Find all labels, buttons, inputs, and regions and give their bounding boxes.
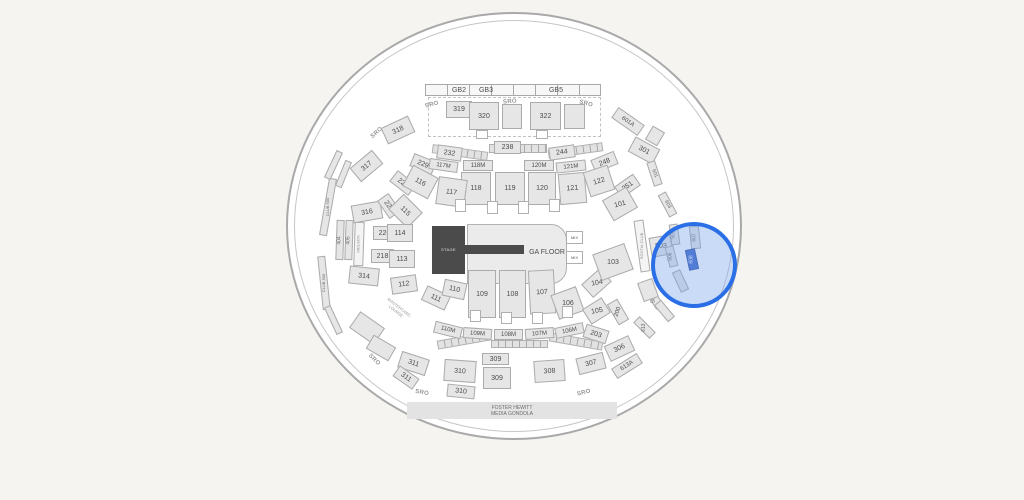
section-107m[interactable]: 107M bbox=[525, 327, 555, 340]
section-gb2: GB2 bbox=[447, 85, 471, 95]
arena-shape-portal bbox=[487, 201, 498, 214]
section-mix: MIX bbox=[566, 251, 583, 264]
section-113[interactable]: 113 bbox=[389, 250, 415, 268]
section-108[interactable]: 108 bbox=[499, 270, 526, 318]
seat-map[interactable]: GB2GB3GB5319320322SROSROSROSRO3183173163… bbox=[0, 0, 1024, 500]
section-molson[interactable]: MOLSON bbox=[353, 222, 365, 266]
section-322[interactable]: 322 bbox=[530, 102, 561, 130]
section-404[interactable]: 404 bbox=[335, 220, 344, 260]
section-120m[interactable]: 120M bbox=[524, 160, 554, 171]
section-108m[interactable]: 108M bbox=[494, 329, 523, 340]
section-320[interactable]: 320 bbox=[469, 102, 499, 130]
section-405[interactable]: 405 bbox=[344, 220, 353, 260]
arena-shape-portal bbox=[470, 310, 481, 322]
section-308[interactable]: 308 bbox=[533, 359, 565, 383]
section-310[interactable]: 310 bbox=[443, 359, 476, 383]
selected-section-highlight bbox=[651, 222, 737, 308]
section-314[interactable]: 314 bbox=[348, 265, 380, 286]
section-309[interactable]: 309 bbox=[482, 353, 509, 365]
arena-shape-portal bbox=[501, 312, 512, 324]
arena-shape-tick bbox=[491, 340, 548, 348]
section-114[interactable]: 114 bbox=[387, 224, 413, 242]
section-309[interactable]: 309 bbox=[483, 367, 511, 389]
section-gb3: GB3 bbox=[474, 85, 498, 95]
section-mix: MIX bbox=[566, 231, 583, 244]
section-118m[interactable]: 118M bbox=[463, 160, 493, 171]
section-107[interactable]: 107 bbox=[528, 269, 556, 314]
section-foster-hewitt-media-gondola: FOSTER HEWITTMEDIA GONDOLA bbox=[407, 402, 617, 419]
section-238[interactable]: 238 bbox=[494, 141, 521, 154]
arena-shape-portal bbox=[518, 201, 529, 214]
arena-shape-runway bbox=[464, 245, 524, 254]
arena-shape-portal bbox=[549, 199, 560, 212]
section-stage: STAGE bbox=[432, 226, 465, 274]
arena-shape-portal bbox=[536, 130, 548, 139]
sro-section[interactable]: SRO bbox=[498, 96, 523, 108]
arena-shape-portal bbox=[455, 199, 466, 212]
section-112[interactable]: 112 bbox=[390, 274, 418, 294]
section-310[interactable]: 310 bbox=[446, 384, 475, 400]
arena-shape-portal bbox=[476, 130, 488, 139]
section-ga-floor: GA FLOOR bbox=[522, 246, 572, 258]
arena-shape-portal bbox=[562, 306, 573, 318]
section-gb5: GB5 bbox=[544, 85, 568, 95]
section-121[interactable]: 121 bbox=[558, 172, 588, 205]
arena-shape-portal bbox=[532, 312, 543, 324]
section-109m[interactable]: 109M bbox=[463, 327, 493, 340]
arena-shape-sec[interactable] bbox=[502, 104, 522, 129]
